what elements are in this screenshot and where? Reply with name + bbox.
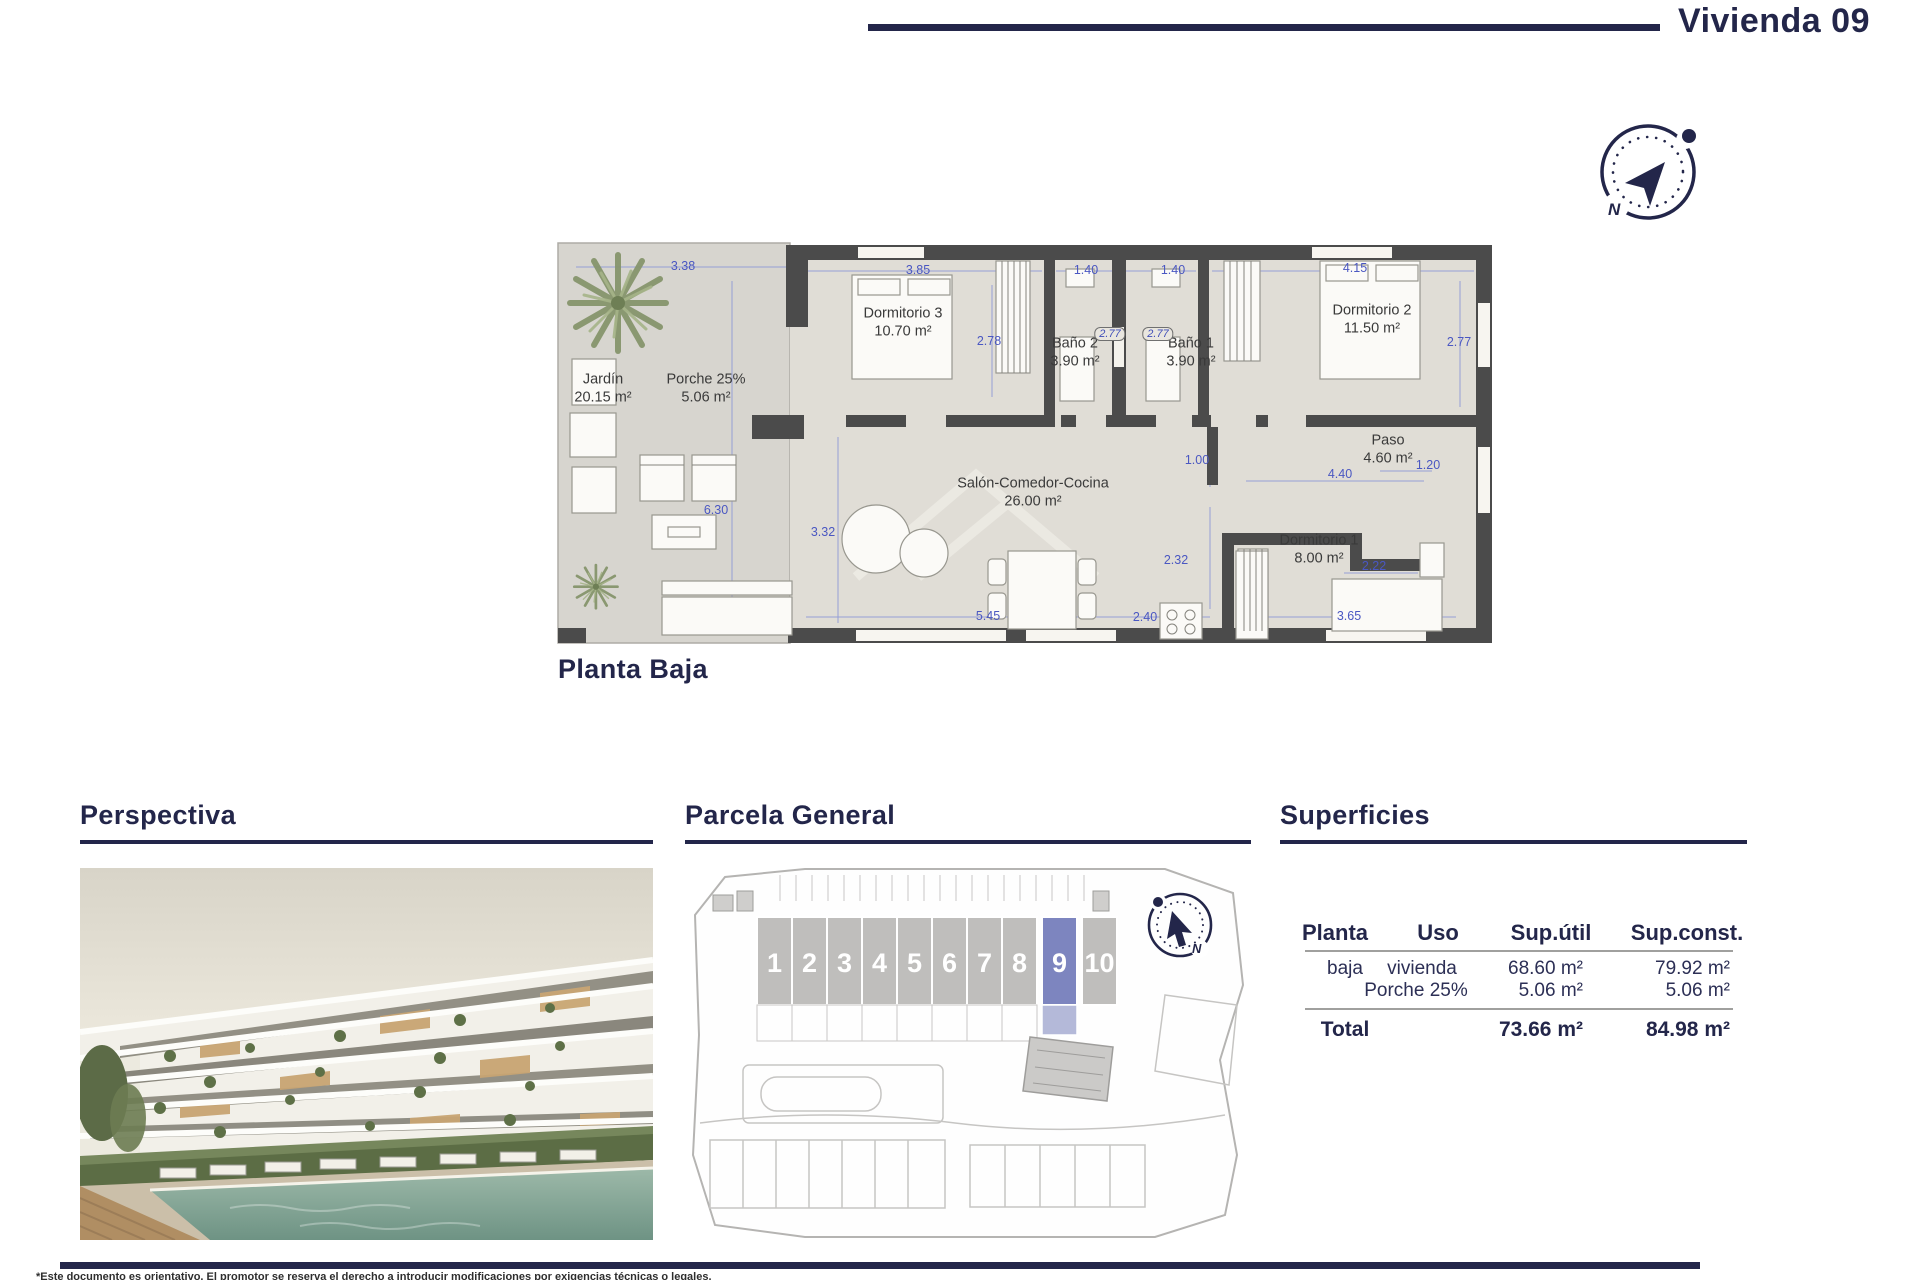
dimension-label: 2.77 <box>1447 335 1471 349</box>
svg-text:3: 3 <box>837 948 852 978</box>
room-label-dormitorio-1: Dormitorio 18.00 m² <box>1280 532 1359 567</box>
floor-plan: Jardín20.15 m² Porche 25%5.06 m² Dormito… <box>556 237 1502 651</box>
footer-line <box>60 1262 1700 1269</box>
dimension-label: 1.00 <box>1185 453 1209 467</box>
room-label-bano-2: Baño 23.90 m² <box>1050 335 1099 370</box>
col-header-sup-util: Sup.útil <box>1511 920 1592 946</box>
perspective-photo <box>80 868 653 1240</box>
cell-planta: baja <box>1327 958 1363 980</box>
dimension-label: 2.77 <box>1094 327 1125 341</box>
room-label-porche: Porche 25%5.06 m² <box>667 371 746 406</box>
dimension-label: 1.20 <box>1416 458 1440 472</box>
room-label-jardin: Jardín20.15 m² <box>574 371 631 406</box>
site-building-filled <box>1023 1037 1113 1101</box>
footer-disclaimer: *Este documento es orientativo. El promo… <box>36 1271 712 1280</box>
superficies-table: Planta Uso Sup.útil Sup.const. baja vivi… <box>1280 900 1750 1060</box>
svg-text:8: 8 <box>1012 948 1027 978</box>
cell-sup-const: 79.92 m² <box>1655 958 1730 980</box>
compass-icon: N <box>1592 116 1704 228</box>
dimension-label: 5.45 <box>976 609 1000 623</box>
superficies-title: Superficies <box>1280 800 1430 831</box>
svg-text:9: 9 <box>1052 948 1067 978</box>
dimension-label: 6.30 <box>704 503 728 517</box>
perspectiva-rule <box>80 840 653 844</box>
svg-text:10: 10 <box>1084 948 1114 978</box>
dimension-label: 2.78 <box>977 334 1001 348</box>
dimension-label: 2.22 <box>1362 559 1386 573</box>
room-label-dormitorio-3: Dormitorio 310.70 m² <box>864 305 943 340</box>
cell-uso: vivienda <box>1387 958 1457 980</box>
parcel-unit-9-porch <box>1042 1005 1077 1035</box>
cell-sup-util: 5.06 m² <box>1519 980 1583 1002</box>
dimension-label: 3.65 <box>1337 609 1361 623</box>
total-label: Total <box>1321 1018 1370 1042</box>
compass-north-label: N <box>1608 200 1621 219</box>
site-compass-north-label: N <box>1192 941 1202 956</box>
parcela-rule <box>685 840 1251 844</box>
brochure-page: Vivienda 09 N <box>0 0 1920 1280</box>
dimension-label: 4.40 <box>1328 467 1352 481</box>
dimension-label: 4.15 <box>1343 261 1367 275</box>
cell-sup-util: 68.60 m² <box>1508 958 1583 980</box>
room-label-paso: Paso4.60 m² <box>1363 432 1412 467</box>
perspectiva-title: Perspectiva <box>80 800 236 831</box>
page-title: Vivienda 09 <box>1678 2 1870 41</box>
dimension-label: 3.38 <box>671 259 695 273</box>
col-header-uso: Uso <box>1417 920 1459 946</box>
cell-uso: Porche 25% <box>1364 980 1468 1002</box>
compass-dot <box>1682 129 1696 143</box>
total-sup-util: 73.66 m² <box>1499 1018 1583 1042</box>
total-sup-const: 84.98 m² <box>1646 1018 1730 1042</box>
svg-text:4: 4 <box>872 948 887 978</box>
dimension-label: 2.77 <box>1142 327 1173 341</box>
svg-text:7: 7 <box>977 948 992 978</box>
col-header-sup-const: Sup.const. <box>1631 920 1743 946</box>
dimension-label: 2.40 <box>1133 610 1157 624</box>
room-label-salon: Salón-Comedor-Cocina26.00 m² <box>957 475 1109 510</box>
svg-text:6: 6 <box>942 948 957 978</box>
svg-text:1: 1 <box>767 948 782 978</box>
site-plan: 1 2 3 4 5 6 7 8 9 10 <box>685 855 1251 1245</box>
parcela-title: Parcela General <box>685 800 895 831</box>
header-line <box>868 24 1660 31</box>
north-arrow-icon <box>1625 162 1665 206</box>
dimension-label: 2.32 <box>1164 553 1188 567</box>
dimension-label: 1.40 <box>1074 263 1098 277</box>
dimension-label: 3.85 <box>906 263 930 277</box>
room-label-dormitorio-2: Dormitorio 211.50 m² <box>1333 302 1412 337</box>
cell-sup-const: 5.06 m² <box>1666 980 1730 1002</box>
table-total-line <box>1305 1008 1733 1010</box>
dimension-label: 3.32 <box>811 525 835 539</box>
plan-caption: Planta Baja <box>558 654 708 685</box>
superficies-rule <box>1280 840 1747 844</box>
floor-plan-drawing <box>556 237 1502 651</box>
dimension-label: 1.40 <box>1161 263 1185 277</box>
svg-text:2: 2 <box>802 948 817 978</box>
table-header-line <box>1305 950 1733 952</box>
col-header-planta: Planta <box>1302 920 1368 946</box>
svg-text:5: 5 <box>907 948 922 978</box>
room-label-bano-1: Baño 13.90 m² <box>1166 335 1215 370</box>
